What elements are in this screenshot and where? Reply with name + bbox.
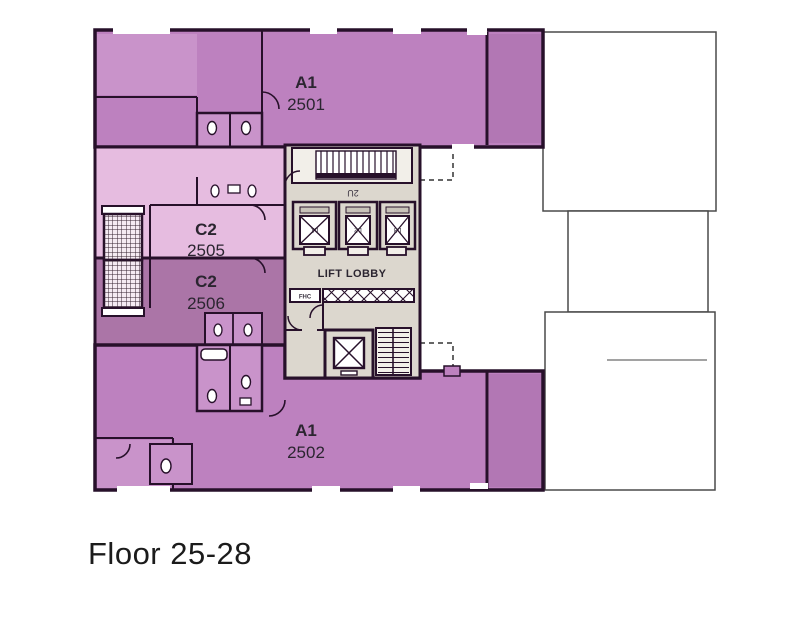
unit-c2-2506-type: C2 (195, 272, 217, 291)
lift-door (304, 247, 325, 255)
unit-a1-2501-number: 2501 (287, 95, 325, 114)
lift-bank: L1 L2 L3 (293, 202, 415, 255)
unit-a1-2502-bathrooms (197, 345, 262, 411)
neighbor-outline (543, 32, 716, 490)
toilet-icon (211, 185, 219, 197)
toilet-icon (242, 122, 251, 135)
toilet-icon (242, 376, 251, 389)
lift-3-label: L3 (394, 226, 402, 233)
floor-caption: Floor 25-28 (88, 536, 252, 572)
main-staircase (292, 148, 412, 183)
neighbor-rect-top (543, 32, 716, 211)
toilet-icon (208, 390, 217, 403)
toilet-icon (161, 459, 171, 473)
lift-door (348, 247, 368, 255)
unit-a1-2501-type: A1 (295, 73, 317, 92)
fhc-strip: FHC (290, 289, 414, 302)
core: 2U L1 L2 (285, 145, 420, 378)
lift-2-label: L2 (354, 226, 362, 233)
unit-a1-2501-bay (489, 34, 541, 143)
unit-c2-2505-type: C2 (195, 220, 217, 239)
louver-grille (104, 260, 142, 308)
unit-a1-2501-bedroom (97, 34, 197, 95)
back-staircase (376, 328, 411, 375)
unit-a1-2502-type: A1 (295, 421, 317, 440)
louver-grille (104, 214, 142, 260)
lift-1: L1 (293, 202, 336, 255)
floor-plan-page: A1 2501 C2 2505 (0, 0, 800, 630)
unit-a1-2502-small-bath (150, 444, 192, 484)
unit-c2-2506-bathroom (205, 313, 262, 345)
sink-icon (228, 185, 240, 193)
toilet-icon (248, 185, 256, 197)
toilet-icon (208, 122, 217, 135)
unit-a1-2502-number: 2502 (287, 443, 325, 462)
toilet-icon (244, 324, 252, 336)
door-gap (302, 327, 317, 332)
louver-strips (102, 206, 144, 316)
unit-c2-2506-number: 2506 (187, 294, 225, 313)
stair-label: 2U (347, 188, 359, 198)
sink-icon (240, 398, 251, 405)
stair-treads (316, 151, 396, 173)
riser-hatch (323, 289, 414, 302)
service-lift (325, 330, 373, 378)
lift-lobby-label: LIFT LOBBY (318, 268, 387, 280)
lift-1-label: L1 (311, 226, 319, 233)
neighbor-rect-bottom (545, 312, 715, 490)
neighbor-rect-middle (568, 211, 708, 312)
toilet-icon (214, 324, 222, 336)
louver-cap (102, 308, 144, 316)
unit-a1-2502-bay (489, 374, 541, 487)
lift-2: L2 (339, 202, 377, 255)
fhc-label: FHC (299, 295, 312, 301)
lift-door (387, 247, 406, 255)
lift-3: L3 (380, 202, 415, 255)
bathtub-icon (201, 349, 227, 360)
balcony-tab (444, 366, 460, 376)
